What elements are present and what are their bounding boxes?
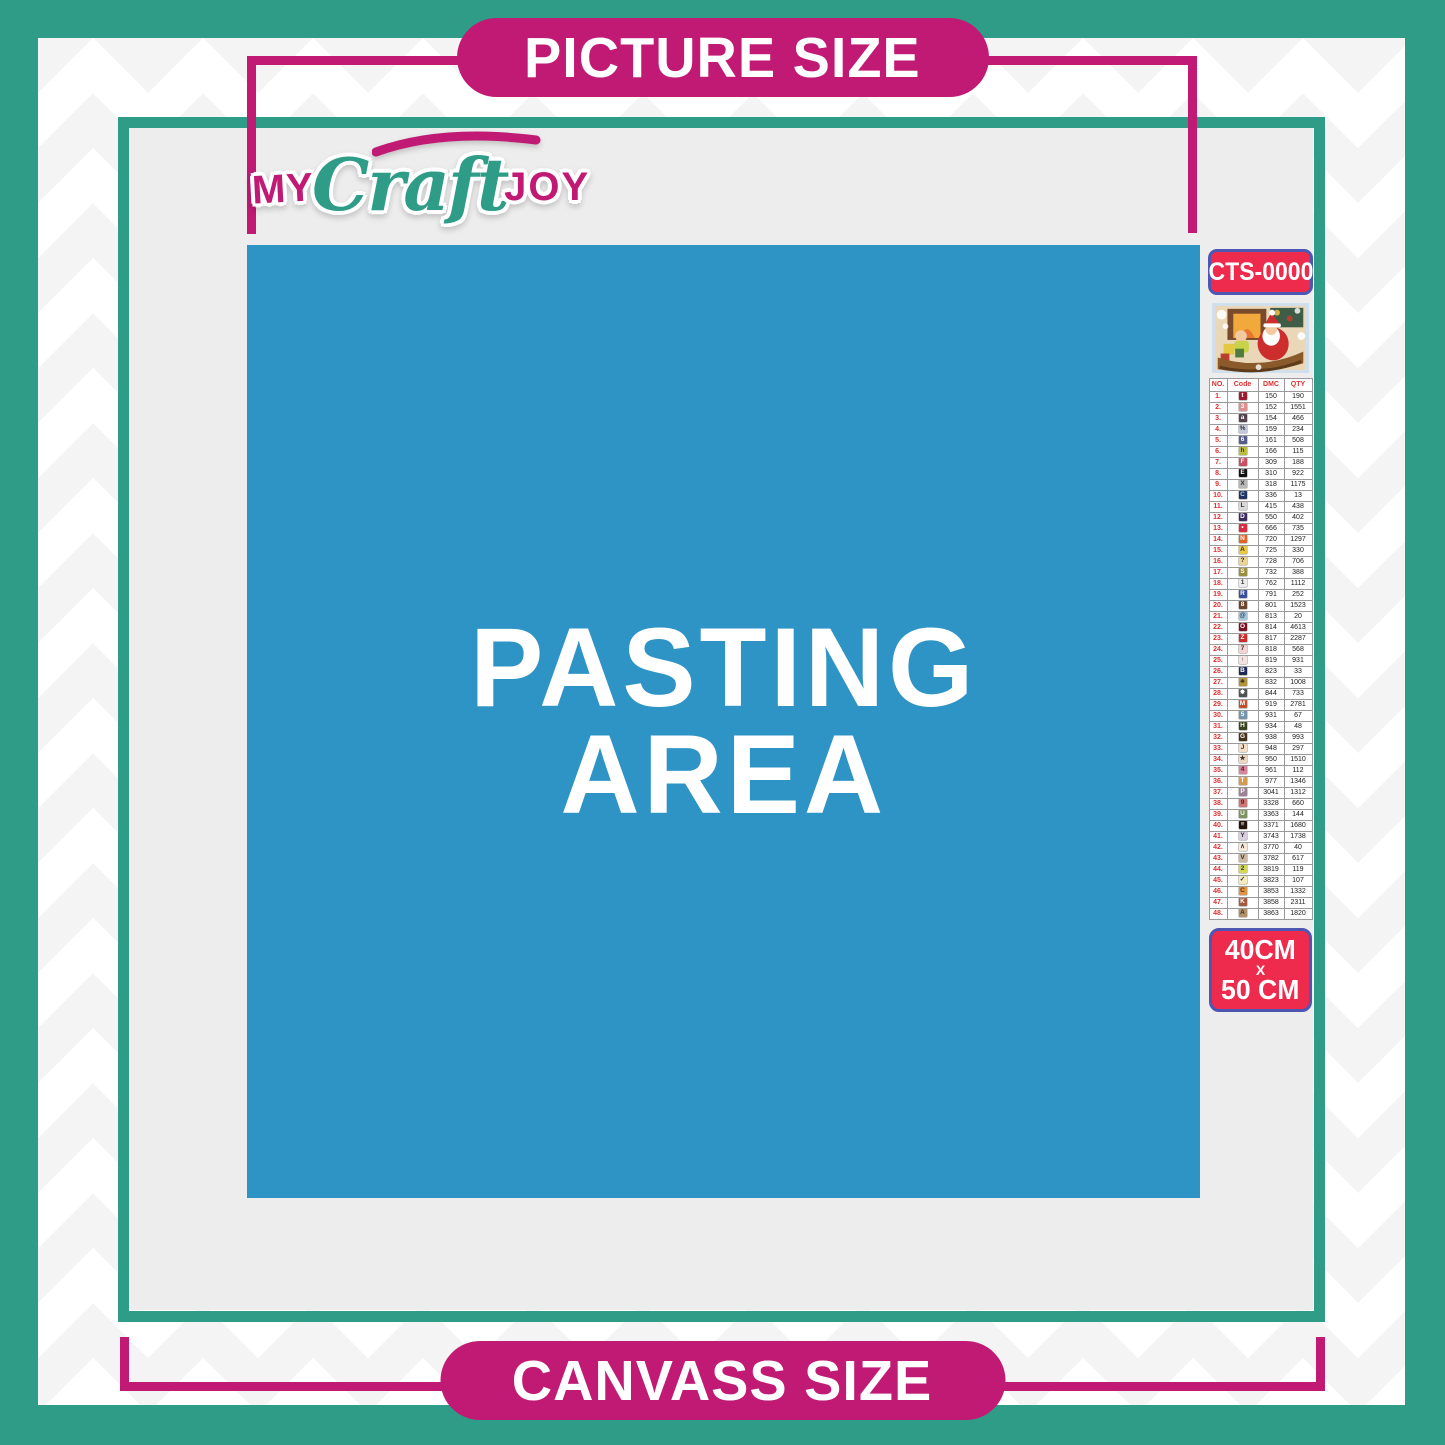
row-number: 43. — [1209, 854, 1227, 865]
code-color-swatch: ✓ — [1239, 876, 1247, 884]
row-dmc-code: 3863 — [1258, 909, 1284, 920]
christmas-santa-sleigh-thumbnail — [1210, 303, 1311, 373]
canvass-size-bracket-right — [1316, 1337, 1325, 1391]
row-number: 17. — [1209, 568, 1227, 579]
dmc-table-row: 17.S732388 — [1209, 568, 1312, 579]
row-code-symbol: X — [1227, 480, 1258, 491]
row-quantity: 617 — [1284, 854, 1312, 865]
dmc-color-legend-table: NO. Code DMC QTY 1.t1501902.315215513.a1… — [1209, 378, 1313, 920]
row-code-symbol: Y — [1227, 832, 1258, 843]
code-color-swatch: C — [1239, 887, 1247, 895]
row-dmc-code: 844 — [1258, 689, 1284, 700]
dmc-table-header: NO. Code DMC QTY — [1209, 379, 1312, 392]
row-code-symbol: 1 — [1227, 579, 1258, 590]
row-number: 39. — [1209, 810, 1227, 821]
row-code-symbol: ? — [1227, 557, 1258, 568]
row-dmc-code: 3858 — [1258, 898, 1284, 909]
row-code-symbol: U — [1227, 810, 1258, 821]
dmc-table-row: 26.B82333 — [1209, 667, 1312, 678]
dmc-table-row: 8.E310922 — [1209, 469, 1312, 480]
code-color-swatch: R — [1239, 590, 1247, 598]
code-color-swatch: X — [1239, 480, 1247, 488]
dmc-table-row: 28.✸844733 — [1209, 689, 1312, 700]
row-quantity: 1332 — [1284, 887, 1312, 898]
row-quantity: 48 — [1284, 722, 1312, 733]
dmc-table-row: 5.6161508 — [1209, 436, 1312, 447]
row-number: 33. — [1209, 744, 1227, 755]
canvass-size-pill: CANVASS SIZE — [440, 1341, 1005, 1420]
row-number: 48. — [1209, 909, 1227, 920]
row-dmc-code: 415 — [1258, 502, 1284, 513]
row-code-symbol: ≡ — [1227, 821, 1258, 832]
code-color-swatch: • — [1239, 524, 1247, 532]
dmc-table-row: 38.93328660 — [1209, 799, 1312, 810]
code-color-swatch: ∧ — [1239, 843, 1247, 851]
row-number: 19. — [1209, 590, 1227, 601]
row-quantity: 402 — [1284, 513, 1312, 524]
row-code-symbol: A — [1227, 909, 1258, 920]
code-color-swatch: O — [1239, 623, 1247, 631]
row-code-symbol: 5 — [1227, 711, 1258, 722]
dmc-table-row: 22.O8144613 — [1209, 623, 1312, 634]
dmc-table-row: 9.X3181175 — [1209, 480, 1312, 491]
sku-badge: CTS-0000 — [1208, 249, 1313, 295]
row-dmc-code: 3819 — [1258, 865, 1284, 876]
code-color-swatch: ★ — [1239, 755, 1247, 763]
row-quantity: 33 — [1284, 667, 1312, 678]
row-number: 8. — [1209, 469, 1227, 480]
row-dmc-code: 309 — [1258, 458, 1284, 469]
code-color-swatch: 6 — [1239, 436, 1247, 444]
code-color-swatch: H — [1239, 722, 1247, 730]
row-number: 38. — [1209, 799, 1227, 810]
row-code-symbol: P — [1227, 788, 1258, 799]
row-dmc-code: 961 — [1258, 766, 1284, 777]
row-code-symbol: N — [1227, 535, 1258, 546]
row-dmc-code: 3371 — [1258, 821, 1284, 832]
row-quantity: 1738 — [1284, 832, 1312, 843]
code-color-swatch: 1 — [1239, 579, 1247, 587]
code-color-swatch: 7 — [1239, 645, 1247, 653]
dmc-table-row: 13.•666735 — [1209, 524, 1312, 535]
row-number: 42. — [1209, 843, 1227, 854]
row-dmc-code: 832 — [1258, 678, 1284, 689]
dmc-table-row: 41.Y37431738 — [1209, 832, 1312, 843]
row-dmc-code: 948 — [1258, 744, 1284, 755]
picture-size-pill: PICTURE SIZE — [457, 18, 989, 97]
row-code-symbol: F — [1227, 458, 1258, 469]
row-code-symbol: K — [1227, 898, 1258, 909]
picture-size-bracket-right — [1188, 56, 1197, 233]
dmc-table-row: 44.23819119 — [1209, 865, 1312, 876]
row-code-symbol: 2 — [1227, 865, 1258, 876]
row-quantity: 1346 — [1284, 777, 1312, 788]
row-number: 18. — [1209, 579, 1227, 590]
row-quantity: 40 — [1284, 843, 1312, 854]
row-code-symbol: ★ — [1227, 755, 1258, 766]
row-number: 35. — [1209, 766, 1227, 777]
row-dmc-code: 977 — [1258, 777, 1284, 788]
row-number: 14. — [1209, 535, 1227, 546]
row-number: 45. — [1209, 876, 1227, 887]
code-color-swatch: ≡ — [1239, 821, 1247, 829]
row-dmc-code: 938 — [1258, 733, 1284, 744]
row-code-symbol: ↑ — [1227, 656, 1258, 667]
size-width-label: 40CM — [1225, 937, 1296, 963]
dmc-table-row: 21.@81320 — [1209, 612, 1312, 623]
row-quantity: 733 — [1284, 689, 1312, 700]
row-dmc-code: 3782 — [1258, 854, 1284, 865]
dmc-table-row: 32.G938993 — [1209, 733, 1312, 744]
row-dmc-code: 813 — [1258, 612, 1284, 623]
row-quantity: 1008 — [1284, 678, 1312, 689]
code-color-swatch: 2 — [1239, 865, 1247, 873]
row-dmc-code: 819 — [1258, 656, 1284, 667]
dmc-table-row: 3.a154466 — [1209, 414, 1312, 425]
row-quantity: 1680 — [1284, 821, 1312, 832]
row-quantity: 466 — [1284, 414, 1312, 425]
row-quantity: 735 — [1284, 524, 1312, 535]
row-number: 24. — [1209, 645, 1227, 656]
dmc-table-row: 14.N7201297 — [1209, 535, 1312, 546]
row-number: 36. — [1209, 777, 1227, 788]
row-dmc-code: 919 — [1258, 700, 1284, 711]
code-color-swatch: L — [1239, 502, 1247, 510]
row-number: 6. — [1209, 447, 1227, 458]
row-number: 28. — [1209, 689, 1227, 700]
row-number: 12. — [1209, 513, 1227, 524]
row-code-symbol: R — [1227, 590, 1258, 601]
dmc-table-row: 29.M9192781 — [1209, 700, 1312, 711]
row-quantity: 2311 — [1284, 898, 1312, 909]
row-code-symbol: J — [1227, 744, 1258, 755]
dmc-table-row: 4.%159234 — [1209, 425, 1312, 436]
row-code-symbol: 6 — [1227, 436, 1258, 447]
row-code-symbol: B — [1227, 667, 1258, 678]
code-color-swatch: A — [1239, 909, 1247, 917]
code-color-swatch: C — [1239, 491, 1247, 499]
dmc-table-row: 23.Z8172287 — [1209, 634, 1312, 645]
row-quantity: 20 — [1284, 612, 1312, 623]
row-quantity: 112 — [1284, 766, 1312, 777]
dmc-table-row: 18.17621112 — [1209, 579, 1312, 590]
row-code-symbol: 9 — [1227, 799, 1258, 810]
dmc-table-row: 27.♣8321008 — [1209, 678, 1312, 689]
code-color-swatch: % — [1239, 425, 1247, 433]
row-number: 25. — [1209, 656, 1227, 667]
header-no: NO. — [1209, 379, 1227, 392]
row-number: 22. — [1209, 623, 1227, 634]
row-code-symbol: M — [1227, 700, 1258, 711]
pasting-area: PASTING AREA — [247, 245, 1200, 1198]
row-quantity: 330 — [1284, 546, 1312, 557]
row-code-symbol: L — [1227, 502, 1258, 513]
row-dmc-code: 934 — [1258, 722, 1284, 733]
row-number: 21. — [1209, 612, 1227, 623]
code-color-swatch: 4 — [1239, 766, 1247, 774]
row-dmc-code: 728 — [1258, 557, 1284, 568]
header-code: Code — [1227, 379, 1258, 392]
row-quantity: 993 — [1284, 733, 1312, 744]
row-code-symbol: Z — [1227, 634, 1258, 645]
dmc-table-row: 31.H93448 — [1209, 722, 1312, 733]
row-quantity: 2287 — [1284, 634, 1312, 645]
row-quantity: 190 — [1284, 392, 1312, 403]
row-dmc-code: 152 — [1258, 403, 1284, 414]
row-number: 10. — [1209, 491, 1227, 502]
row-quantity: 1551 — [1284, 403, 1312, 414]
row-dmc-code: 150 — [1258, 392, 1284, 403]
code-color-swatch: A — [1239, 546, 1247, 554]
row-code-symbol: h — [1227, 447, 1258, 458]
dmc-table-row: 19.R791252 — [1209, 590, 1312, 601]
row-code-symbol: T — [1227, 777, 1258, 788]
row-quantity: 1112 — [1284, 579, 1312, 590]
row-number: 16. — [1209, 557, 1227, 568]
dmc-table-row: 2.31521551 — [1209, 403, 1312, 414]
canvass-size-label: CANVASS SIZE — [512, 1348, 932, 1414]
row-number: 13. — [1209, 524, 1227, 535]
dmc-table-row: 30.593167 — [1209, 711, 1312, 722]
code-color-swatch: S — [1239, 568, 1247, 576]
row-code-symbol: a — [1227, 414, 1258, 425]
header-qty: QTY — [1284, 379, 1312, 392]
code-color-swatch: @ — [1239, 612, 1247, 620]
row-code-symbol: % — [1227, 425, 1258, 436]
row-number: 5. — [1209, 436, 1227, 447]
dmc-table-row: 12.D550402 — [1209, 513, 1312, 524]
row-dmc-code: 166 — [1258, 447, 1284, 458]
row-quantity: 13 — [1284, 491, 1312, 502]
dmc-table-row: 10.C33613 — [1209, 491, 1312, 502]
row-quantity: 508 — [1284, 436, 1312, 447]
row-code-symbol: G — [1227, 733, 1258, 744]
picture-size-label: PICTURE SIZE — [524, 25, 921, 91]
mycraftjoy-logo: MY Craft JOY — [252, 138, 542, 242]
row-dmc-code: 336 — [1258, 491, 1284, 502]
canvas-size-badge: 40CM X 50 CM — [1209, 928, 1312, 1012]
code-color-swatch: t — [1239, 392, 1247, 400]
row-quantity: 107 — [1284, 876, 1312, 887]
code-color-swatch: N — [1239, 535, 1247, 543]
row-quantity: 1297 — [1284, 535, 1312, 546]
row-quantity: 1312 — [1284, 788, 1312, 799]
sku-text: CTS-0000 — [1208, 258, 1313, 287]
dmc-table-row: 20.88011523 — [1209, 601, 1312, 612]
code-color-swatch: 9 — [1239, 799, 1247, 807]
dmc-table-row: 11.L415438 — [1209, 502, 1312, 513]
row-code-symbol: C — [1227, 491, 1258, 502]
row-dmc-code: 818 — [1258, 645, 1284, 656]
code-color-swatch: M — [1239, 700, 1247, 708]
row-dmc-code: 154 — [1258, 414, 1284, 425]
row-number: 20. — [1209, 601, 1227, 612]
row-dmc-code: 762 — [1258, 579, 1284, 590]
code-color-swatch: P — [1239, 788, 1247, 796]
header-dmc: DMC — [1258, 379, 1284, 392]
row-quantity: 67 — [1284, 711, 1312, 722]
dmc-table-row: 42.∧377040 — [1209, 843, 1312, 854]
row-number: 41. — [1209, 832, 1227, 843]
row-code-symbol: S — [1227, 568, 1258, 579]
row-dmc-code: 3743 — [1258, 832, 1284, 843]
row-dmc-code: 666 — [1258, 524, 1284, 535]
row-number: 37. — [1209, 788, 1227, 799]
row-dmc-code: 318 — [1258, 480, 1284, 491]
row-code-symbol: 7 — [1227, 645, 1258, 656]
row-dmc-code: 3041 — [1258, 788, 1284, 799]
row-dmc-code: 3823 — [1258, 876, 1284, 887]
logo-word-my: MY — [251, 165, 315, 213]
row-number: 34. — [1209, 755, 1227, 766]
row-number: 27. — [1209, 678, 1227, 689]
row-code-symbol: @ — [1227, 612, 1258, 623]
logo-word-joy: JOY — [504, 165, 590, 210]
dmc-table-row: 40.≡33711680 — [1209, 821, 1312, 832]
dmc-table-row: 36.T9771346 — [1209, 777, 1312, 788]
row-code-symbol: 8 — [1227, 601, 1258, 612]
code-color-swatch: ? — [1239, 557, 1247, 565]
code-color-swatch: ✸ — [1239, 689, 1247, 697]
row-dmc-code: 931 — [1258, 711, 1284, 722]
dmc-table-row: 16.?728706 — [1209, 557, 1312, 568]
row-code-symbol: O — [1227, 623, 1258, 634]
code-color-swatch: 8 — [1239, 601, 1247, 609]
row-quantity: 144 — [1284, 810, 1312, 821]
code-color-swatch: ♣ — [1239, 678, 1247, 686]
row-number: 31. — [1209, 722, 1227, 733]
code-color-swatch: T — [1239, 777, 1247, 785]
row-code-symbol: 4 — [1227, 766, 1258, 777]
row-dmc-code: 3770 — [1258, 843, 1284, 854]
diamond-painting-size-guide-poster: PASTING AREA MY Craft JOY CTS-0000 — [0, 0, 1445, 1445]
row-code-symbol: C — [1227, 887, 1258, 898]
row-dmc-code: 159 — [1258, 425, 1284, 436]
code-color-swatch: ↑ — [1239, 656, 1247, 664]
row-dmc-code: 3363 — [1258, 810, 1284, 821]
size-height-label: 50 CM — [1221, 977, 1299, 1003]
row-quantity: 234 — [1284, 425, 1312, 436]
row-dmc-code: 791 — [1258, 590, 1284, 601]
code-color-swatch: Z — [1239, 634, 1247, 642]
code-color-swatch: 5 — [1239, 711, 1247, 719]
code-color-swatch: V — [1239, 854, 1247, 862]
row-dmc-code: 732 — [1258, 568, 1284, 579]
row-dmc-code: 3853 — [1258, 887, 1284, 898]
legend-sidebar: CTS-0000 — [1208, 249, 1313, 1012]
row-code-symbol: t — [1227, 392, 1258, 403]
dmc-table-row: 46.C38531332 — [1209, 887, 1312, 898]
row-dmc-code: 310 — [1258, 469, 1284, 480]
row-quantity: 931 — [1284, 656, 1312, 667]
row-code-symbol: D — [1227, 513, 1258, 524]
row-code-symbol: • — [1227, 524, 1258, 535]
pasting-area-label-line1: PASTING — [470, 615, 977, 721]
dmc-table-row: 1.t150190 — [1209, 392, 1312, 403]
row-code-symbol: E — [1227, 469, 1258, 480]
row-dmc-code: 814 — [1258, 623, 1284, 634]
row-code-symbol: ♣ — [1227, 678, 1258, 689]
dmc-table-row: 33.J948297 — [1209, 744, 1312, 755]
row-number: 40. — [1209, 821, 1227, 832]
row-number: 1. — [1209, 392, 1227, 403]
row-quantity: 438 — [1284, 502, 1312, 513]
code-color-swatch: J — [1239, 744, 1247, 752]
row-number: 26. — [1209, 667, 1227, 678]
row-number: 47. — [1209, 898, 1227, 909]
logo-word-craft: Craft — [312, 142, 508, 227]
code-color-swatch: G — [1239, 733, 1247, 741]
row-number: 4. — [1209, 425, 1227, 436]
row-dmc-code: 3328 — [1258, 799, 1284, 810]
row-code-symbol: 3 — [1227, 403, 1258, 414]
code-color-swatch: K — [1239, 898, 1247, 906]
row-dmc-code: 161 — [1258, 436, 1284, 447]
row-number: 30. — [1209, 711, 1227, 722]
canvass-size-bracket-left — [120, 1337, 129, 1391]
row-number: 23. — [1209, 634, 1227, 645]
dmc-table-row: 35.4961112 — [1209, 766, 1312, 777]
code-color-swatch: E — [1239, 469, 1247, 477]
row-number: 7. — [1209, 458, 1227, 469]
row-quantity: 922 — [1284, 469, 1312, 480]
row-quantity: 1510 — [1284, 755, 1312, 766]
row-dmc-code: 801 — [1258, 601, 1284, 612]
dmc-table-row: 37.P30411312 — [1209, 788, 1312, 799]
code-color-swatch: a — [1239, 414, 1247, 422]
row-quantity: 1175 — [1284, 480, 1312, 491]
row-quantity: 119 — [1284, 865, 1312, 876]
code-color-swatch: Y — [1239, 832, 1247, 840]
dmc-table-row: 43.V3782617 — [1209, 854, 1312, 865]
dmc-table-row: 25.↑819931 — [1209, 656, 1312, 667]
row-quantity: 115 — [1284, 447, 1312, 458]
row-code-symbol: ✓ — [1227, 876, 1258, 887]
row-code-symbol: V — [1227, 854, 1258, 865]
row-quantity: 188 — [1284, 458, 1312, 469]
row-quantity: 1523 — [1284, 601, 1312, 612]
row-number: 3. — [1209, 414, 1227, 425]
row-dmc-code: 823 — [1258, 667, 1284, 678]
row-dmc-code: 817 — [1258, 634, 1284, 645]
row-quantity: 388 — [1284, 568, 1312, 579]
row-quantity: 660 — [1284, 799, 1312, 810]
row-quantity: 706 — [1284, 557, 1312, 568]
row-dmc-code: 950 — [1258, 755, 1284, 766]
row-number: 29. — [1209, 700, 1227, 711]
row-quantity: 297 — [1284, 744, 1312, 755]
row-dmc-code: 720 — [1258, 535, 1284, 546]
row-dmc-code: 550 — [1258, 513, 1284, 524]
row-quantity: 1820 — [1284, 909, 1312, 920]
row-number: 9. — [1209, 480, 1227, 491]
dmc-table-row: 7.F309188 — [1209, 458, 1312, 469]
code-color-swatch: 3 — [1239, 403, 1247, 411]
dmc-table-row: 48.A38631820 — [1209, 909, 1312, 920]
row-number: 2. — [1209, 403, 1227, 414]
dmc-table-body: 1.t1501902.315215513.a1544664.%1592345.6… — [1209, 392, 1312, 920]
dmc-table-row: 39.U3363144 — [1209, 810, 1312, 821]
pasting-area-label-line2: AREA — [560, 722, 887, 828]
dmc-table-row: 24.7818568 — [1209, 645, 1312, 656]
dmc-table-row: 15.A725330 — [1209, 546, 1312, 557]
code-color-swatch: h — [1239, 447, 1247, 455]
row-dmc-code: 725 — [1258, 546, 1284, 557]
row-quantity: 2781 — [1284, 700, 1312, 711]
code-color-swatch: B — [1239, 667, 1247, 675]
row-quantity: 252 — [1284, 590, 1312, 601]
dmc-table-row: 45.✓3823107 — [1209, 876, 1312, 887]
